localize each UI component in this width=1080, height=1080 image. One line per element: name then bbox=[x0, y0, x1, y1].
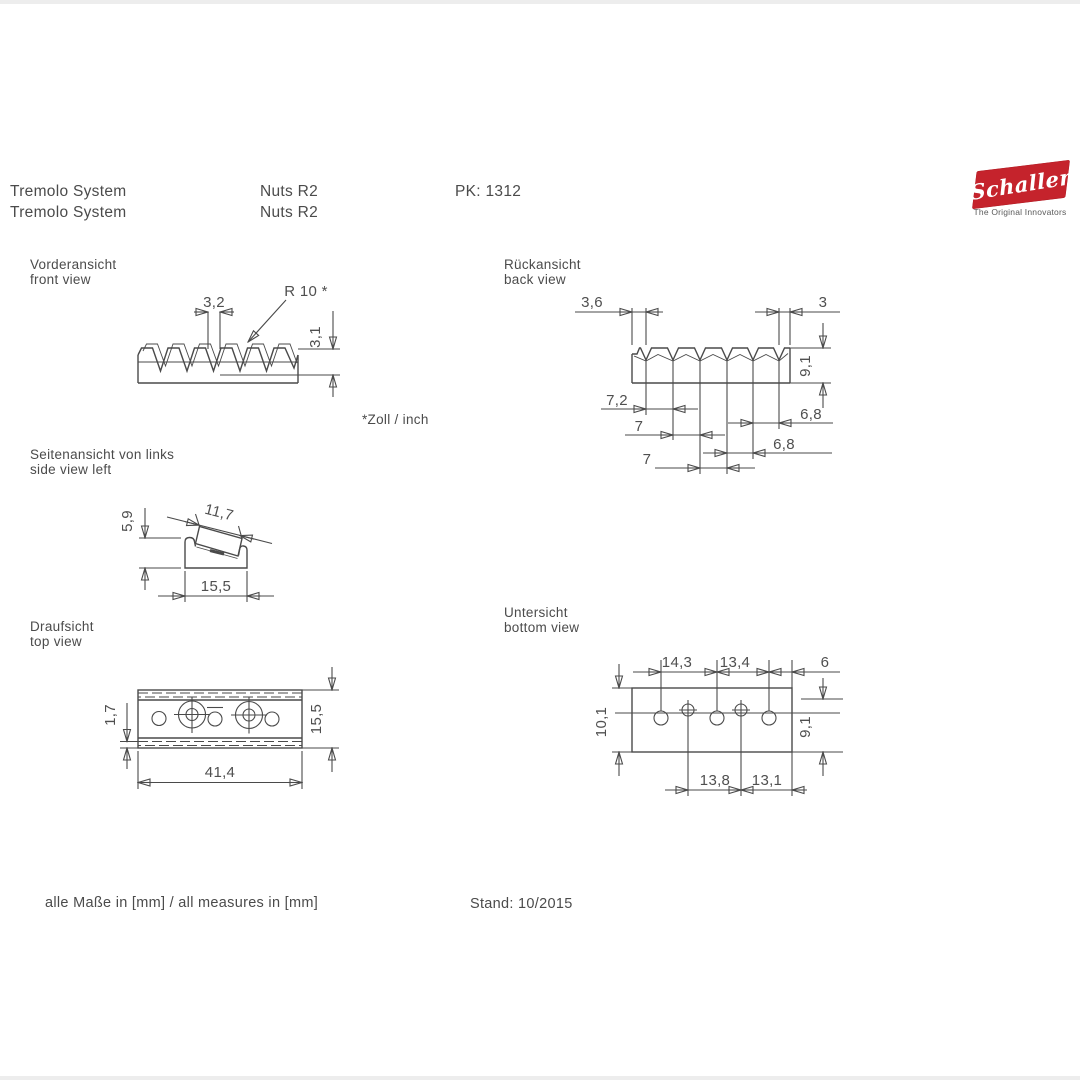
top-view-title-de: Draufsicht bbox=[30, 620, 94, 635]
nut-side-outline bbox=[185, 527, 247, 569]
nut-top-outline bbox=[138, 690, 302, 748]
back-view-title-de: Rückansicht bbox=[504, 258, 581, 273]
dim-label: 9,1 bbox=[797, 716, 814, 738]
dim-label: 5,9 bbox=[119, 510, 136, 532]
header-model-2: Nuts R2 bbox=[260, 204, 318, 222]
front-view-label: Vorderansicht front view bbox=[30, 258, 116, 287]
schaller-logo-mark: Schaller bbox=[972, 160, 1070, 209]
top-view-holes bbox=[152, 697, 279, 734]
measures-note: alle Maße in [mm] / all measures in [mm] bbox=[45, 895, 318, 911]
front-view-title-en: front view bbox=[30, 273, 116, 288]
front-view-title-de: Vorderansicht bbox=[30, 258, 116, 273]
front-dimensions: 3,2 R 10 * 3,1 bbox=[194, 283, 340, 397]
dim-label: 13,8 bbox=[700, 772, 730, 789]
dim-label: 7,2 bbox=[606, 392, 628, 409]
dim-label: 10,1 bbox=[593, 707, 610, 737]
dim-label: 6 bbox=[821, 654, 830, 671]
dim-label: 6,8 bbox=[773, 436, 795, 453]
dim-label: 3,6 bbox=[581, 294, 603, 311]
schaller-logo: Schaller The Original Innovators bbox=[968, 166, 1076, 217]
dim-label: 7 bbox=[643, 451, 652, 468]
schaller-logo-wordmark: Schaller bbox=[970, 164, 1072, 205]
dim-label: 3,2 bbox=[203, 294, 225, 311]
dim-label: 3,1 bbox=[307, 326, 324, 348]
dim-label: 11,7 bbox=[203, 501, 236, 525]
dim-label: 3 bbox=[819, 294, 828, 311]
top-view-title-en: top view bbox=[30, 635, 94, 650]
header-product-1: Tremolo System bbox=[10, 183, 126, 201]
drawing-sheet: Tremolo System Nuts R2 PK: 1312 Tremolo … bbox=[0, 0, 1080, 1080]
dim-label: 13,4 bbox=[720, 654, 750, 671]
header-pk: PK: 1312 bbox=[455, 183, 521, 201]
top-view-drawing: 1,7 15,5 41,4 bbox=[75, 655, 365, 805]
dim-label: R 10 * bbox=[284, 283, 328, 300]
dim-label: 1,7 bbox=[102, 704, 119, 726]
bottom-view-title-de: Untersicht bbox=[504, 606, 579, 621]
dim-label: 15,5 bbox=[201, 578, 231, 595]
back-view-drawing: 3,6 3 9,1 7,2 bbox=[555, 278, 885, 503]
side-view-title-en: side view left bbox=[30, 463, 174, 478]
side-view-drawing: 5,9 11,7 15,5 bbox=[60, 480, 300, 610]
sheet-bottom-edge bbox=[0, 1076, 1080, 1080]
dim-label: 14,3 bbox=[662, 654, 692, 671]
side-view-label: Seitenansicht von links side view left bbox=[30, 448, 174, 477]
top-view-label: Draufsicht top view bbox=[30, 620, 94, 649]
side-dimensions: 5,9 11,7 15,5 bbox=[119, 501, 274, 602]
back-dimensions: 3,6 3 9,1 7,2 bbox=[575, 294, 840, 474]
sheet-top-edge bbox=[0, 0, 1080, 4]
side-view-title-de: Seitenansicht von links bbox=[30, 448, 174, 463]
schaller-logo-tagline: The Original Innovators bbox=[968, 207, 1072, 217]
dim-label: 9,1 bbox=[797, 355, 814, 377]
revision-date: Stand: 10/2015 bbox=[470, 896, 573, 912]
dim-label: 6,8 bbox=[800, 406, 822, 423]
header-product-2: Tremolo System bbox=[10, 204, 126, 222]
dim-label: 13,1 bbox=[752, 772, 782, 789]
header-model-1: Nuts R2 bbox=[260, 183, 318, 201]
nut-bottom-outline bbox=[632, 688, 792, 752]
front-view-drawing: 3,2 R 10 * 3,1 bbox=[120, 278, 370, 413]
inch-footnote: *Zoll / inch bbox=[362, 412, 429, 427]
nut-front-outline bbox=[138, 344, 298, 383]
dim-label: 15,5 bbox=[308, 704, 325, 734]
dim-label: 41,4 bbox=[205, 764, 235, 781]
nut-back-outline bbox=[632, 348, 790, 383]
bottom-view-drawing: 14,3 13,4 6 10,1 9,1 13,8 bbox=[555, 630, 885, 810]
dim-label: 7 bbox=[635, 418, 644, 435]
